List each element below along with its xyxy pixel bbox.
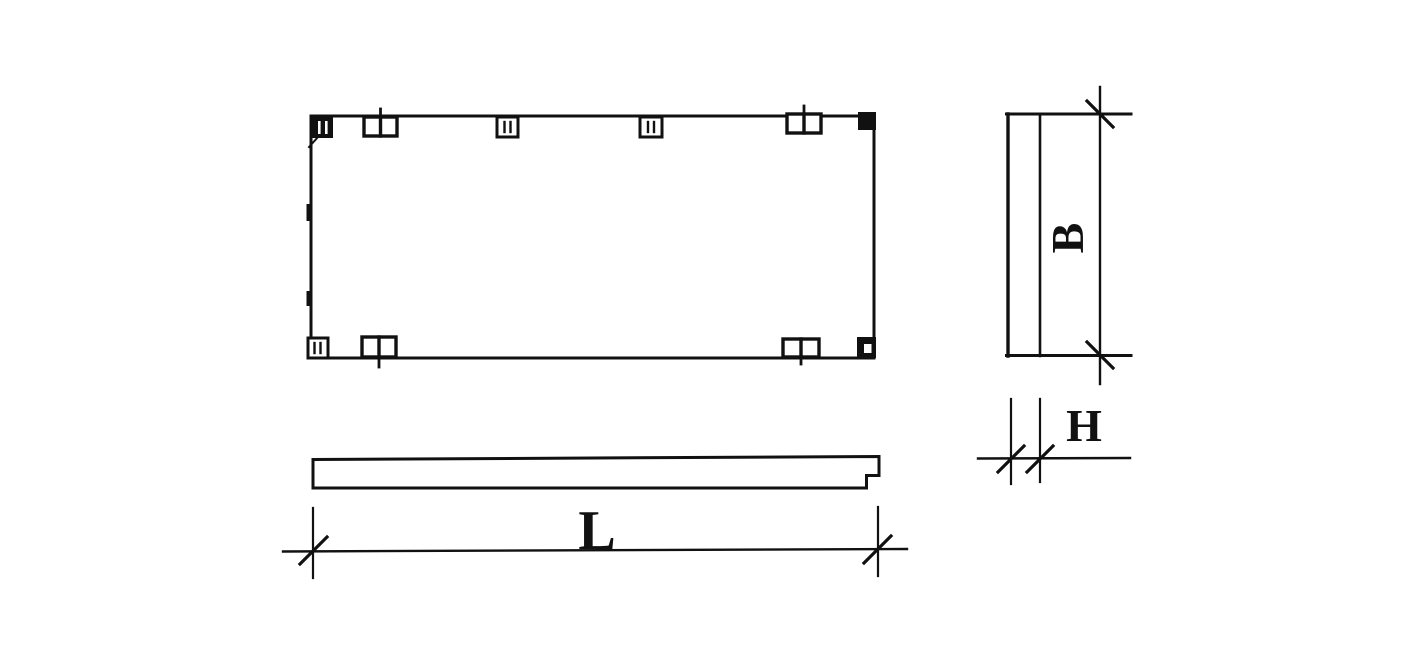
width-dimension-label: B: [1042, 223, 1093, 254]
lifting-loop-bottom-left-icon: [362, 337, 396, 367]
lifting-loop-bottom-right-icon: [783, 339, 819, 364]
corner-anchor-top-right-icon: [858, 112, 876, 130]
anchor-socket-top-1-icon: [497, 117, 518, 137]
dimension-length: L: [283, 500, 907, 578]
dimension-width: B: [1042, 87, 1113, 384]
anchor-socket-bottom-left-icon: [308, 338, 328, 358]
corner-anchor-bottom-right-icon: [857, 337, 876, 358]
scan-marks-left-edge: [307, 204, 310, 306]
plan-view: [307, 106, 877, 367]
dimension-thickness: H: [978, 399, 1130, 484]
panel-three-view-drawing: L B H: [0, 0, 1416, 672]
lifting-loop-top-right-icon: [787, 106, 821, 133]
technical-drawing-sheet: L B H: [0, 0, 1416, 672]
length-dimension-label: L: [578, 500, 615, 562]
lifting-loop-top-left-icon: [364, 109, 397, 136]
elevation-view: [313, 457, 879, 489]
panel-elevation-outline: [313, 457, 879, 489]
thickness-dimension-label: H: [1066, 400, 1102, 451]
panel-plan-outline: [311, 116, 874, 358]
anchor-socket-top-2-icon: [640, 117, 662, 137]
